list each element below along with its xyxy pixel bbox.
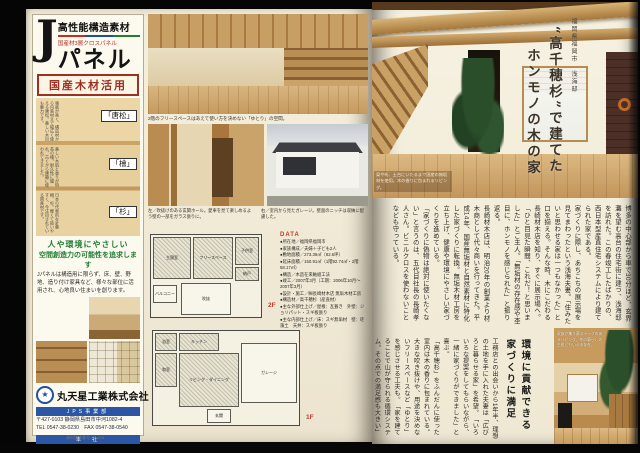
room-free-space: フリースペース	[193, 237, 233, 279]
photo-captions: 左／吹抜けのある玄関ホール。愛車を見て楽しめるよう壁の一部をガラス張りに。 右／…	[148, 208, 368, 226]
living-photo-caption: 家族が集う薪ストーブのあるリビング。冬の暮らしの主役ともいえる存在。	[557, 332, 605, 349]
article-title-line1: “高千穂杉”で建てた	[544, 26, 564, 175]
ad-body-text: Jパネルは構造用に限らず、床、壁、野地、造り付け家具など、様々な部位に活用され、…	[37, 272, 139, 295]
room-kitchen: キッチン	[179, 333, 219, 351]
plan-label-2f: 2F	[268, 302, 276, 309]
article-body-text-2: 工務店との出会いから1年半、理想の土地を手に入れた夫妻は「広びろと暮らせる家」を…	[375, 338, 499, 441]
dept-bar-jps: JPS事業部	[36, 407, 140, 416]
jps-address: 〒427-0103 静岡県島田市中河1082-4 TEL 0547-38-023…	[36, 417, 140, 432]
ad-slogan-line1: 人や環境にやさしい	[36, 239, 140, 250]
left-article-column: 2階のフリースペースはあえて使い方を決めない「ゆとり」の空間。 左／吹抜けのある…	[148, 14, 368, 438]
ad-badge: 国産木材活用	[37, 74, 139, 96]
photo-caption-right: 右／室内から見たガレージ。壁面のニッチは収納に配慮した。	[261, 208, 368, 226]
tricolor-rule	[58, 35, 140, 38]
room-kodomo: 子供室	[235, 237, 259, 265]
right-page: 福岡県福岡市 浅海邸 “高千穂杉”で建てた ホンモノの木の家 梁や桁、土台にいた…	[372, 2, 638, 444]
room-fukinuke: 吹抜	[181, 283, 231, 315]
top-photo-caption: 2階のフリースペースはあえて使い方を決めない「ゆとり」の空間。	[148, 116, 368, 122]
photo-bookshelf-loft	[284, 48, 368, 80]
room-washitsu: 和室	[155, 353, 177, 387]
living-room-photo: 家族が集う薪ストーブのあるリビング。冬の暮らしの主役ともいえる存在。	[554, 328, 638, 444]
floor-plans: 主寝室 フリースペース 子供室 納戸 吹抜 バルコニー 2F DATA ●所在地…	[148, 228, 368, 442]
photo-post	[428, 10, 437, 156]
wood-label-sugi: 「杉」	[109, 206, 138, 218]
data-heading: DATA	[280, 232, 366, 238]
data-items: ●所在地／福岡県福岡市 ●家族構成／夫婦＋子ども2人 ●敷地面積／273.36㎡…	[280, 239, 366, 329]
main-photo-caption: 梁や桁、土台にいたるまで国産の無垢材を使用。木の香りに包まれるリビング。	[374, 171, 452, 192]
wood-note-karamatsu: 強度が高く、構造材から内装材まで幅広く使える唐松。美しい木目も魅力です。	[38, 101, 60, 143]
jps-address-line: 〒427-0103 静岡県島田市中河1082-4	[36, 417, 140, 424]
wood-label-hinoki: 「檜」	[109, 158, 138, 170]
jps-tel-line: TEL 0547-38-0230 FAX 0547-38-0540	[36, 425, 140, 432]
floor-plan-1f: キッチン 浴室 和室 リビング・ダイニング ガレージ 玄関	[152, 330, 300, 426]
photo-exterior-house	[267, 124, 368, 206]
floor-plan-2f: 主寝室 フリースペース 子供室 納戸 吹抜 バルコニー	[150, 234, 262, 318]
main-interior-photo: 福岡県福岡市 浅海邸 “高千穂杉”で建てた ホンモノの木の家 梁や桁、土台にいた…	[372, 2, 638, 198]
scan-bottom-edge	[0, 444, 640, 453]
request-number: 資料請求番号 No.428	[66, 435, 104, 441]
photo-small-window	[567, 374, 597, 402]
ad-header-right: 高性能構造素材 国産材3層クロスパネル パネル	[58, 18, 140, 71]
wood-label-karamatsu: 「唐松」	[101, 110, 137, 122]
ad-photo-interior-2	[89, 297, 140, 339]
ad-big-letter: J	[36, 18, 58, 71]
ad-product-name: パネル	[58, 48, 140, 71]
room-living-dining: リビング・ダイニング	[179, 353, 239, 407]
property-data-list: DATA ●所在地／福岡県福岡市 ●家族構成／夫婦＋子ども2人 ●敷地面積／27…	[280, 232, 366, 329]
data-item: ●主な外部仕上げ／屋根：瓦葺き 外壁：ジョリパット・スギ板張り	[280, 304, 366, 317]
article-body-text: 博多の中心部から車で30分ほど、玄界灘を望む高台の住宅街に建つ、浅海邸を訪れた。…	[378, 205, 632, 327]
data-item: ●主な内部仕上げ／床：スギ無垢材 壁：珪藻土 天井：スギ板張り	[280, 317, 366, 330]
magazine-spread-scan: J 高性能構造素材 国産材3層クロスパネル パネル 国産木材活用 「唐松」 「檜…	[0, 0, 640, 453]
jpanel-ad: J 高性能構造素材 国産材3層クロスパネル パネル 国産木材活用 「唐松」 「檜…	[32, 14, 144, 436]
photo-free-space-2f	[148, 14, 368, 114]
ad-photo-grid	[36, 297, 140, 383]
plan-label-1f: 1F	[306, 414, 314, 421]
data-item: ●竣工／2007年3月（工期：2006年10月～2007年3月）	[280, 278, 366, 291]
wood-note-sugi: 日本の代表的な針葉樹、杉。軽くて扱いやすく、今注目されている国産材です。	[38, 193, 60, 235]
ad-slogan-line2: 空間創造力の可能性を追求します	[36, 250, 140, 270]
ad-headline: 高性能構造素材	[58, 19, 140, 34]
photo-entrance-hall	[148, 124, 264, 206]
wood-note-hinoki: 美しい木肌と香りが特長の檜。耐久性に優れ、古くから建築に使われてきました。	[38, 147, 60, 189]
photo-doorway	[212, 138, 233, 197]
data-item: ●延床面積／150.91㎡（1階92.74㎡・2階58.17㎡）	[280, 259, 366, 272]
article-title-line2: ホンモノの木の家	[522, 48, 542, 176]
photo-pair-row	[148, 124, 368, 206]
page-edge-shadow	[628, 2, 638, 444]
article-subheading: 環境に貢献できる 家づくりに満足	[502, 339, 532, 441]
room-genkan: 玄関	[207, 409, 231, 423]
company-logo-icon: ★	[36, 386, 54, 404]
room-shinshitsu: 主寝室	[153, 237, 191, 279]
left-page: J 高性能構造素材 国産材3層クロスパネル パネル 国産木材活用 「唐松」 「檜…	[26, 9, 372, 442]
company-logo-row: ★ 丸天星工業株式会社	[36, 386, 140, 404]
ad-photo-washitsu	[89, 341, 140, 383]
room-garage: ガレージ	[241, 343, 297, 403]
photo-post	[171, 124, 177, 206]
photo-porch	[283, 157, 315, 175]
photo-ground	[267, 196, 368, 207]
photo-staircase	[372, 44, 428, 156]
photo-ceiling-planks	[148, 14, 368, 50]
article-location-label: 福岡県福岡市 浅海邸	[569, 18, 578, 93]
room-nando: 納戸	[235, 267, 259, 281]
ad-photo-interior-1	[36, 297, 87, 339]
ad-photo-shelves	[36, 341, 87, 383]
photo-wall	[148, 48, 284, 86]
photo-floor	[148, 86, 368, 114]
photo-floor-planks	[554, 428, 638, 444]
company-name: 丸天星工業株式会社	[57, 388, 149, 403]
room-balcony: バルコニー	[153, 285, 177, 303]
ad-slogan: 人や環境にやさしい 空間創造力の可能性を追求します	[36, 239, 140, 270]
photo-caption-left: 左／吹抜けのある玄関ホール。愛車を見て楽しめるよう壁の一部をガラス張りに。	[148, 208, 255, 226]
ad-header: J 高性能構造素材 国産材3層クロスパネル パネル	[36, 18, 140, 71]
room-bath: 浴室	[155, 333, 177, 351]
wood-samples-photo: 「唐松」 「檜」 「杉」 強度が高く、構造材から内装材まで幅広く使える唐松。美し…	[36, 98, 140, 236]
